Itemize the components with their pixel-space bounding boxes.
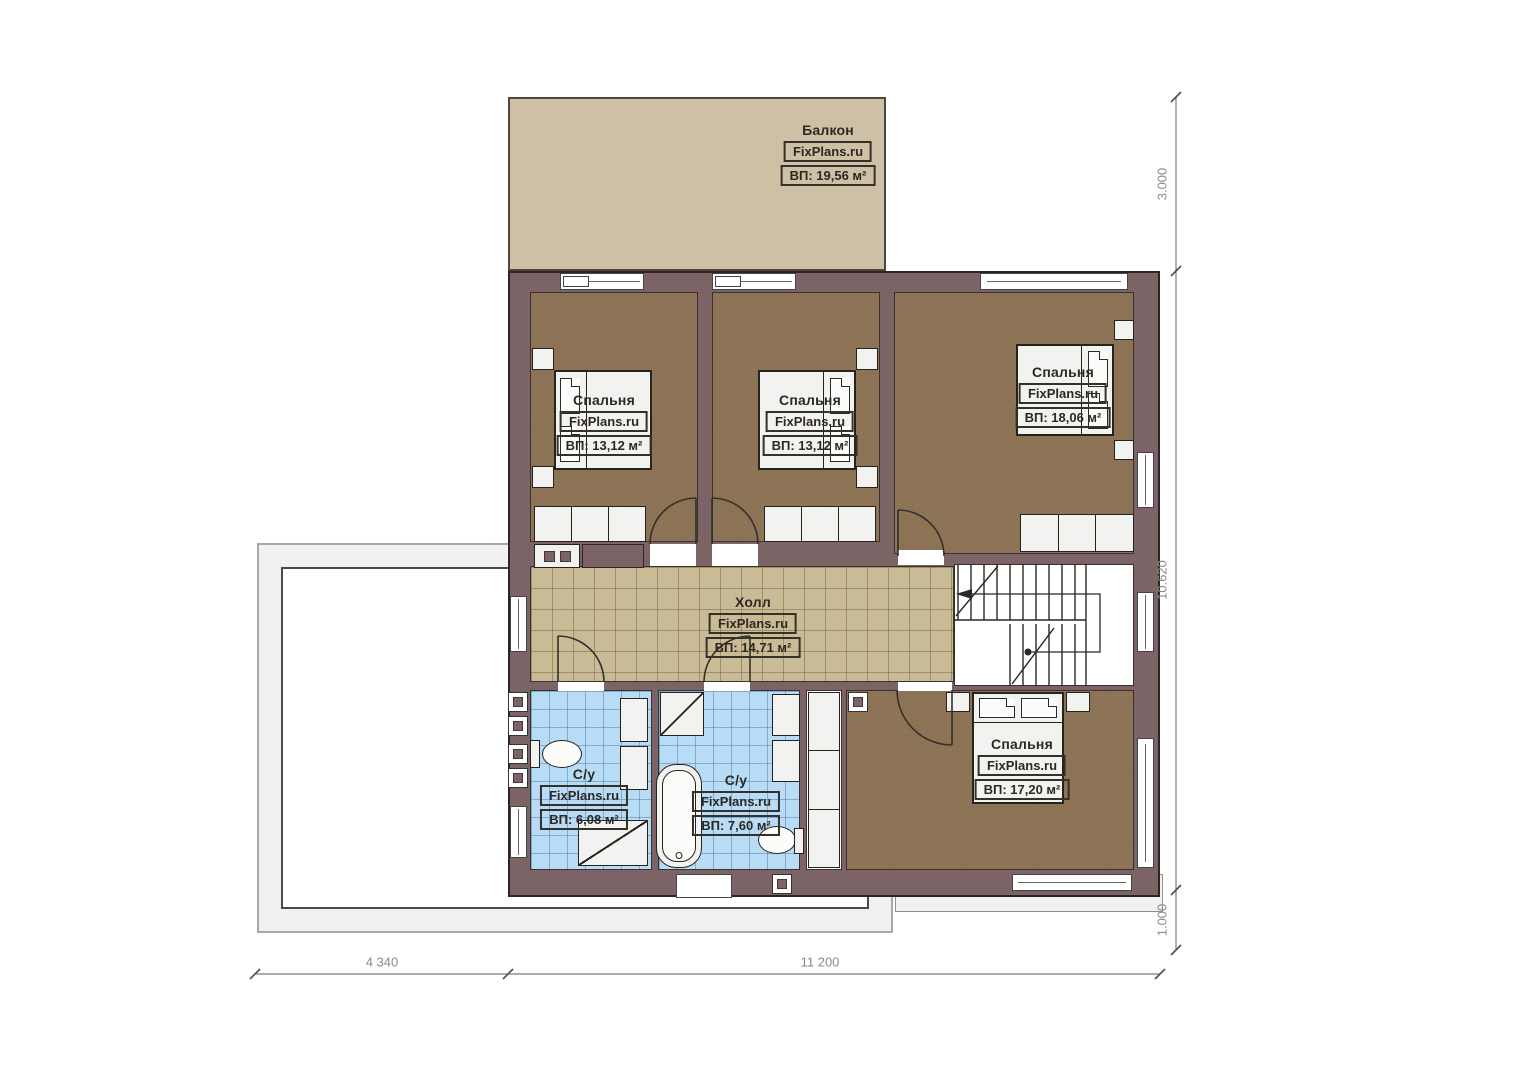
window-bedroom-4-right: [1137, 738, 1154, 868]
window-mullion: [1145, 595, 1146, 648]
window-hall-left: [510, 596, 527, 652]
room-label-bathroom-1: С/у FixPlans.ru ВП: 6,08 м²: [540, 766, 628, 830]
niche-core: [513, 697, 523, 707]
floor-plan: Балкон FixPlans.ru ВП: 19,56 м² Спальня …: [0, 0, 1528, 1080]
door-opening-bedroom-1: [650, 544, 696, 566]
room-name: Спальня: [573, 392, 635, 408]
window-mullion: [1018, 882, 1127, 883]
brand-label: FixPlans.ru: [978, 755, 1066, 776]
area-label: ВП: 17,20 м²: [975, 779, 1070, 800]
wardrobe-cell: [839, 507, 875, 541]
window-stairs-right: [1137, 592, 1154, 652]
door-opening-bedroom-2: [712, 544, 758, 566]
wardrobe-cell: [609, 507, 645, 541]
room-label-bathroom-2: С/у FixPlans.ru ВП: 7,60 м²: [692, 772, 780, 836]
nightstand: [1114, 320, 1134, 340]
door-leaf: [563, 276, 589, 287]
area-label: ВП: 18,06 м²: [1016, 407, 1111, 428]
room-name: С/у: [725, 772, 747, 788]
area-label: ВП: 14,71 м²: [706, 637, 801, 658]
wardrobe-cell: [802, 507, 839, 541]
nightstand: [856, 348, 878, 370]
door-leaf: [715, 276, 741, 287]
dimension-bottom-right: 11 200: [801, 955, 840, 970]
shower-bathroom-2: [660, 692, 704, 736]
low-cabinet-bedroom-1: [582, 544, 644, 568]
vanity-cabinet: [772, 694, 800, 736]
window-mullion: [518, 809, 519, 855]
window-mullion: [1145, 455, 1146, 505]
bathtub-basin: [662, 770, 696, 862]
room-name: Балкон: [802, 122, 854, 138]
nightstand: [532, 348, 554, 370]
wardrobe-cell: [1021, 515, 1059, 551]
toilet-tank: [530, 740, 540, 768]
wardrobe-cell: [1059, 515, 1097, 551]
brand-label: FixPlans.ru: [1019, 383, 1107, 404]
brand-label: FixPlans.ru: [709, 613, 797, 634]
column-bottom-wall: [772, 874, 792, 894]
room-name: Спальня: [779, 392, 841, 408]
window-bedroom-4-bottom: [1012, 874, 1132, 891]
dimension-right-middle: 10.620: [1155, 560, 1170, 600]
wardrobe-bedroom-1: [534, 506, 646, 542]
niche-core: [513, 749, 523, 759]
nightstand: [946, 692, 970, 712]
wall-niche: [508, 692, 528, 712]
room-label-bedroom-1: Спальня FixPlans.ru ВП: 13,12 м²: [557, 392, 652, 456]
wall-niche: [508, 768, 528, 788]
door-opening-bedroom-4: [898, 682, 952, 691]
vanity-cabinet: [620, 698, 648, 742]
door-opening-bedroom-3: [898, 550, 944, 565]
column-core: [853, 697, 863, 707]
window-mullion: [518, 599, 519, 649]
area-label: ВП: 13,12 м²: [763, 435, 858, 456]
wardrobe-cell: [1096, 515, 1133, 551]
area-label: ВП: 13,12 м²: [557, 435, 652, 456]
door-opening-bathroom-2: [704, 682, 750, 691]
dimension-right-top: 3.000: [1155, 168, 1170, 201]
bathtub-drain: [676, 852, 683, 859]
area-label: ВП: 6,08 м²: [540, 809, 628, 830]
drawer-knob: [544, 551, 555, 562]
wardrobe-bedroom-4: [808, 692, 840, 868]
brand-label: FixPlans.ru: [540, 785, 628, 806]
brand-label: FixPlans.ru: [766, 411, 854, 432]
wardrobe-cell: [765, 507, 802, 541]
wardrobe-cell: [809, 751, 839, 809]
wardrobe-cell: [809, 810, 839, 867]
dimension-bottom-left: 4 340: [366, 955, 399, 970]
brand-label: FixPlans.ru: [692, 791, 780, 812]
nightstand: [856, 466, 878, 488]
wardrobe-bedroom-3: [1020, 514, 1134, 552]
dresser-bedroom-1: [534, 544, 580, 568]
window-mullion: [1145, 744, 1146, 862]
room-name: Спальня: [991, 736, 1053, 752]
blanket-line: [974, 722, 1062, 723]
toilet-tank: [794, 828, 804, 854]
room-label-bedroom-3: Спальня FixPlans.ru ВП: 18,06 м²: [1016, 364, 1111, 428]
area-label: ВП: 19,56 м²: [781, 165, 876, 186]
column-bedroom-4: [848, 692, 868, 712]
service-hatch-bottom: [676, 874, 732, 898]
drawer-knob: [560, 551, 571, 562]
nightstand: [1066, 692, 1090, 712]
wardrobe-cell: [809, 693, 839, 751]
wall-niche: [508, 716, 528, 736]
room-label-hall: Холл FixPlans.ru ВП: 14,71 м²: [706, 594, 801, 658]
toilet-bathroom-1: [542, 740, 582, 768]
niche-core: [513, 721, 523, 731]
balcony-door-bedroom-2: [712, 273, 796, 290]
dimension-right-bottom: 1.000: [1155, 904, 1170, 937]
wardrobe-bedroom-2: [764, 506, 876, 542]
wardrobe-cell: [535, 507, 572, 541]
brand-label: FixPlans.ru: [560, 411, 648, 432]
room-label-bedroom-2: Спальня FixPlans.ru ВП: 13,12 м²: [763, 392, 858, 456]
room-label-bedroom-4: Спальня FixPlans.ru ВП: 17,20 м²: [975, 736, 1070, 800]
balcony-door-bedroom-1: [560, 273, 644, 290]
area-label: ВП: 7,60 м²: [692, 815, 780, 836]
nightstand: [532, 466, 554, 488]
column-core: [777, 879, 787, 889]
door-opening-bathroom-1: [558, 682, 604, 691]
brand-label: FixPlans.ru: [784, 141, 872, 162]
window-mullion: [987, 281, 1121, 282]
room-name: Спальня: [1032, 364, 1094, 380]
staircase-zone: [954, 564, 1134, 686]
room-label-balcony: Балкон FixPlans.ru ВП: 19,56 м²: [781, 122, 876, 186]
room-name: С/у: [573, 766, 595, 782]
pillow: [1021, 698, 1057, 718]
window-bathroom-1-left: [510, 806, 527, 858]
window-bedroom-3-top: [980, 273, 1128, 290]
wardrobe-cell: [572, 507, 609, 541]
pillow: [979, 698, 1015, 718]
niche-core: [513, 773, 523, 783]
wall-niche: [508, 744, 528, 764]
window-bedroom-3-right: [1137, 452, 1154, 508]
room-name: Холл: [735, 594, 771, 610]
nightstand: [1114, 440, 1134, 460]
